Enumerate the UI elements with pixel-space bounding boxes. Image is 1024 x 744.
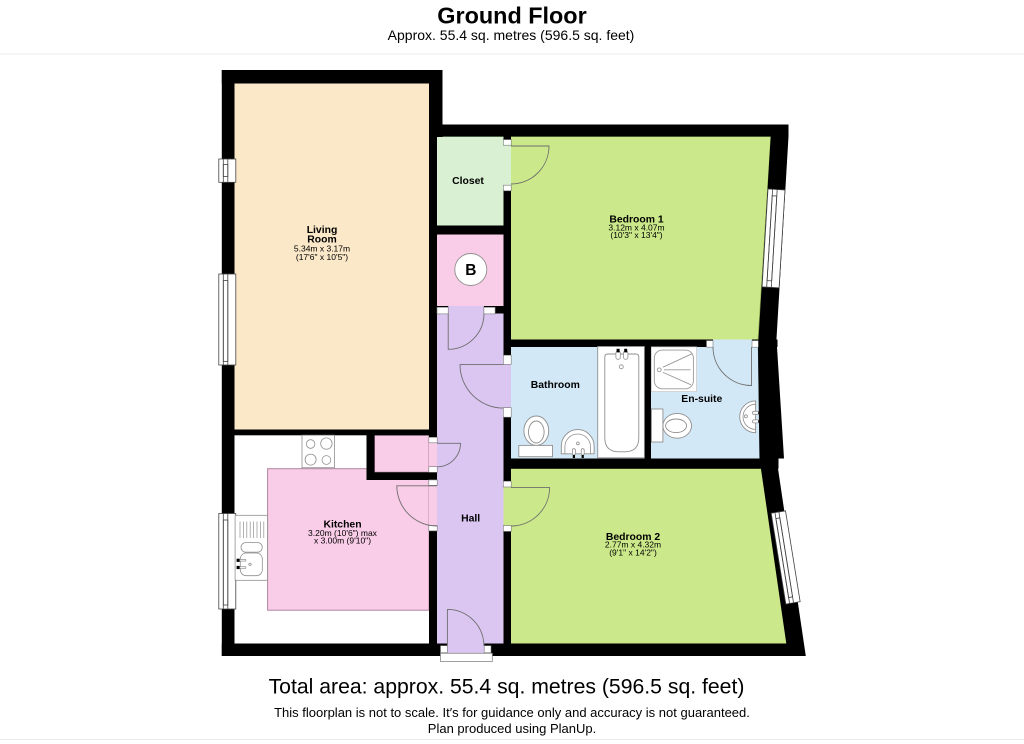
svg-text:Ground Floor: Ground Floor <box>437 3 586 29</box>
svg-text:Plan produced using PlanUp.: Plan produced using PlanUp. <box>428 721 596 736</box>
svg-text:B: B <box>465 262 476 279</box>
svg-text:Approx. 55.4 sq. metres (596.5: Approx. 55.4 sq. metres (596.5 sq. feet) <box>388 27 635 43</box>
svg-text:En-suite: En-suite <box>681 394 722 405</box>
svg-text:Hall: Hall <box>461 514 480 525</box>
svg-text:Bathroom: Bathroom <box>531 380 580 391</box>
svg-text:x 3.00m (9'10"): x 3.00m (9'10") <box>314 535 371 545</box>
svg-text:Closet: Closet <box>452 176 484 187</box>
svg-text:(9'1" x 14'2"): (9'1" x 14'2") <box>609 547 657 557</box>
svg-text:Total area: approx. 55.4 sq. m: Total area: approx. 55.4 sq. metres (596… <box>269 676 745 699</box>
svg-text:This floorplan is not to scale: This floorplan is not to scale. It′s for… <box>274 705 750 720</box>
svg-text:(17'6" x 10'5"): (17'6" x 10'5") <box>296 252 348 262</box>
svg-text:(10'3" x 13'4"): (10'3" x 13'4") <box>610 230 662 240</box>
